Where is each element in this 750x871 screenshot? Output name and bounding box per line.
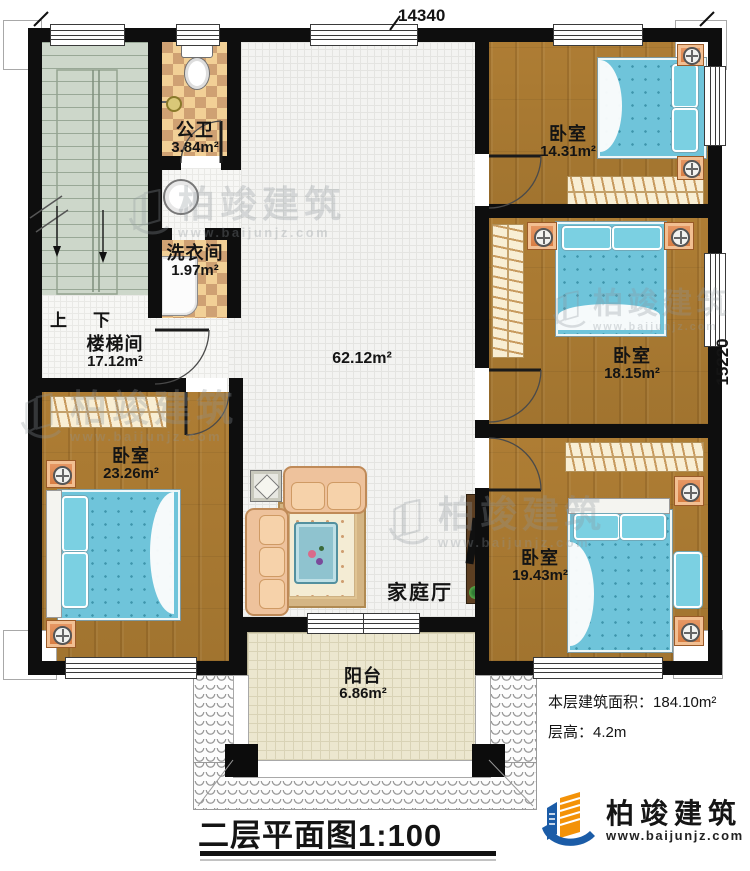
bed-sheet-fold [558, 304, 660, 330]
window-top-hall [310, 24, 418, 46]
floor-plan-page: { "plan": { "dimensions": { "width_mm": … [0, 0, 750, 871]
corridor-opening-floor [227, 168, 241, 228]
bed-pillow [574, 514, 620, 540]
toilet-icon [184, 57, 210, 90]
dimension-width: 14340 [398, 6, 445, 26]
bed-pillow [672, 64, 698, 108]
brand-name: 柏竣建筑 [606, 799, 744, 828]
room-label-bedroom-r: 卧室18.15m² [586, 346, 678, 383]
wall-hall-east-1 [475, 42, 489, 154]
stair-direction-labels: 上下 [50, 306, 136, 331]
title-underline-thin [200, 859, 496, 861]
title-underline [200, 851, 496, 856]
brand-website: www.baijunjz.com [606, 828, 744, 843]
sofa-two-seat [283, 466, 367, 514]
nightstand [664, 222, 694, 250]
nightstand [677, 44, 704, 66]
wall-bed18-bed19-divider [489, 424, 722, 438]
bedside-bench [674, 552, 702, 608]
wall-stairhall-south-corner [229, 378, 243, 392]
hall-name-label: 家庭厅 [380, 582, 460, 604]
bed-pillow [620, 514, 666, 540]
wall-bath-south-a [162, 156, 181, 170]
bed-pillow [62, 552, 88, 608]
nightstand [46, 460, 76, 488]
wall-hall-east-4 [475, 488, 489, 618]
nightstand [674, 476, 704, 506]
sofa-three-seat [245, 508, 289, 616]
nightstand [46, 620, 76, 648]
wardrobe [50, 396, 167, 428]
nightstand [677, 156, 704, 180]
room-label-laundry: 洗衣间1.97m² [158, 243, 232, 280]
window-top-bathroom [176, 24, 220, 46]
bed-headboard [46, 490, 62, 618]
wall-laundry-stub-right [205, 228, 241, 240]
coffee-table [294, 522, 338, 584]
window-top-stairwell [50, 24, 125, 46]
room-label-bedroom-bl: 卧室23.26m² [88, 446, 174, 483]
dimension-height: 15220 [713, 327, 733, 397]
toilet-tank [181, 44, 213, 58]
bed-headboard [568, 498, 670, 514]
wall-stairhall-south [28, 378, 186, 392]
room-label-bedroom-br: 卧室19.43m² [496, 548, 584, 585]
wall-hall-east-2 [475, 206, 489, 368]
nightstand [674, 616, 704, 646]
balcony-sliding-door [307, 613, 420, 634]
wall-bed14-bed18-divider [489, 204, 722, 218]
wall-left [28, 28, 42, 675]
wall-balcony-step-left [233, 617, 247, 675]
wall-hall-east-3 [475, 420, 489, 438]
wall-balcony-step-right [475, 617, 489, 675]
room-label-bathroom: 公卫3.84m² [163, 120, 227, 157]
balcony-column-left [225, 744, 258, 777]
wall-bath-east [227, 42, 241, 168]
room-label-balcony: 阳台6.86m² [328, 666, 398, 703]
wardrobe [565, 442, 704, 472]
washbasin-icon [163, 179, 199, 215]
bed-pillow [62, 496, 88, 552]
drawing-title: 二层平面图1:100 [198, 810, 442, 855]
hall-area-label: 62.12m² [322, 350, 402, 368]
wall-laundry-stub-left [162, 228, 172, 240]
room-label-stairwell: 楼梯间17.12m² [60, 334, 170, 371]
brand-logo-icon [538, 788, 598, 854]
wardrobe [492, 224, 524, 358]
room-label-bedroom-tr: 卧室14.31m² [522, 124, 614, 161]
wall-bath-south-b [221, 156, 241, 170]
bed-pillow [672, 108, 698, 152]
balcony-ledge-bottom [233, 760, 491, 778]
lamp-side-table [250, 470, 282, 502]
window-right-bedroom-top [704, 66, 726, 146]
floor-area-note: 本层建筑面积：184.10m² [548, 688, 716, 718]
bed-pillow [612, 226, 662, 250]
window-top-bedroom [553, 24, 643, 46]
brand-logo: 柏竣建筑 www.baijunjz.com [538, 788, 744, 854]
stairwell-floor [42, 42, 148, 295]
nightstand [527, 222, 557, 250]
bed-pillow [562, 226, 612, 250]
floor-height-note: 层高：4.2m [548, 718, 716, 748]
floor-notes: 本层建筑面积：184.10m² 层高：4.2m [548, 688, 716, 748]
floor-drain-icon [166, 96, 182, 112]
balcony-column-right [472, 744, 505, 777]
window-bottom-bedroom-right [533, 657, 663, 679]
window-bottom-bedroom-left [65, 657, 197, 679]
